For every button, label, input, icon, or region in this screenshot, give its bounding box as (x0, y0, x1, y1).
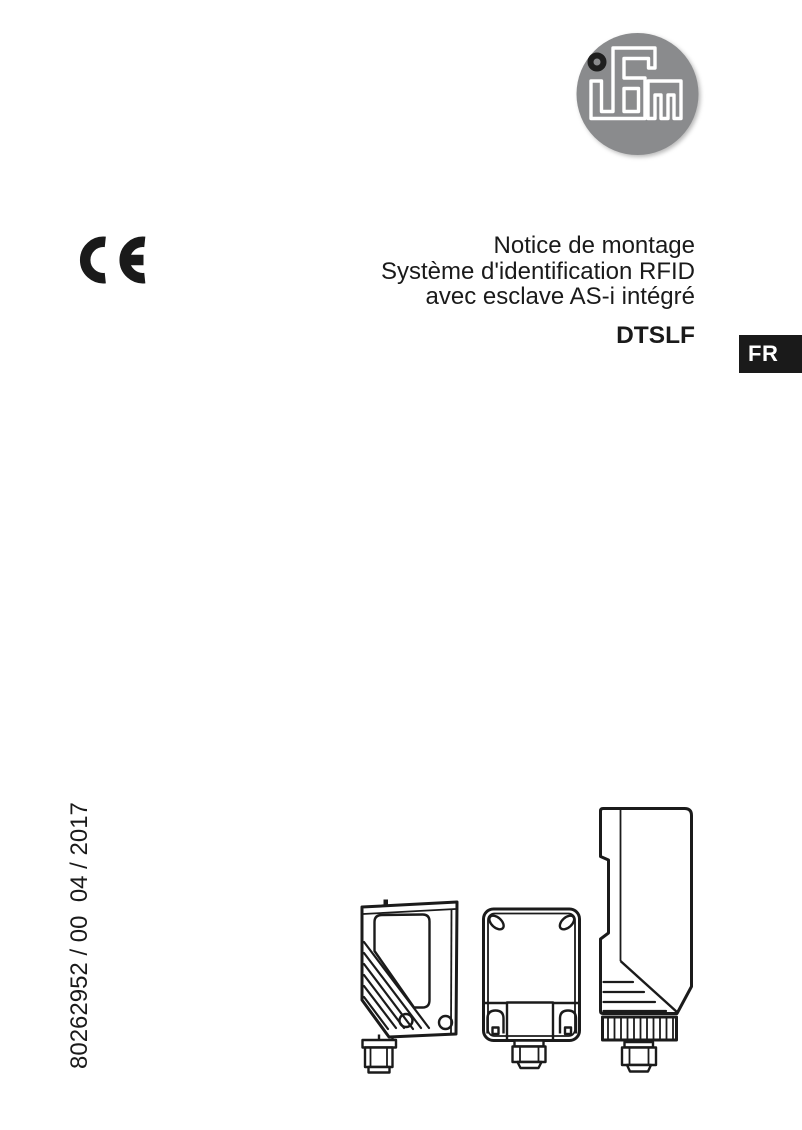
device-flat-antenna (484, 909, 580, 1068)
title-line-3: avec esclave AS-i intégré (265, 284, 695, 310)
document-page: Notice de montage Système d'identificati… (0, 0, 802, 1130)
device-illustrations (330, 780, 770, 1090)
title-block: Notice de montage Système d'identificati… (265, 233, 695, 348)
m12-connector-2 (513, 1041, 546, 1069)
ifm-logo (560, 15, 730, 175)
product-code: DTSLF (265, 323, 695, 349)
device-evaluation-unit (601, 809, 692, 1072)
m12-connector-1 (363, 1035, 397, 1073)
ce-mark-icon (60, 220, 180, 310)
m12-connector-3 (622, 1042, 656, 1072)
device-compact-sensor (362, 900, 457, 1073)
title-line-1: Notice de montage (265, 233, 695, 259)
language-badge: FR (739, 335, 802, 373)
document-number: 80262952 / 00 04 / 2017 (66, 802, 94, 1069)
title-line-2: Système d'identification RFID (265, 259, 695, 285)
